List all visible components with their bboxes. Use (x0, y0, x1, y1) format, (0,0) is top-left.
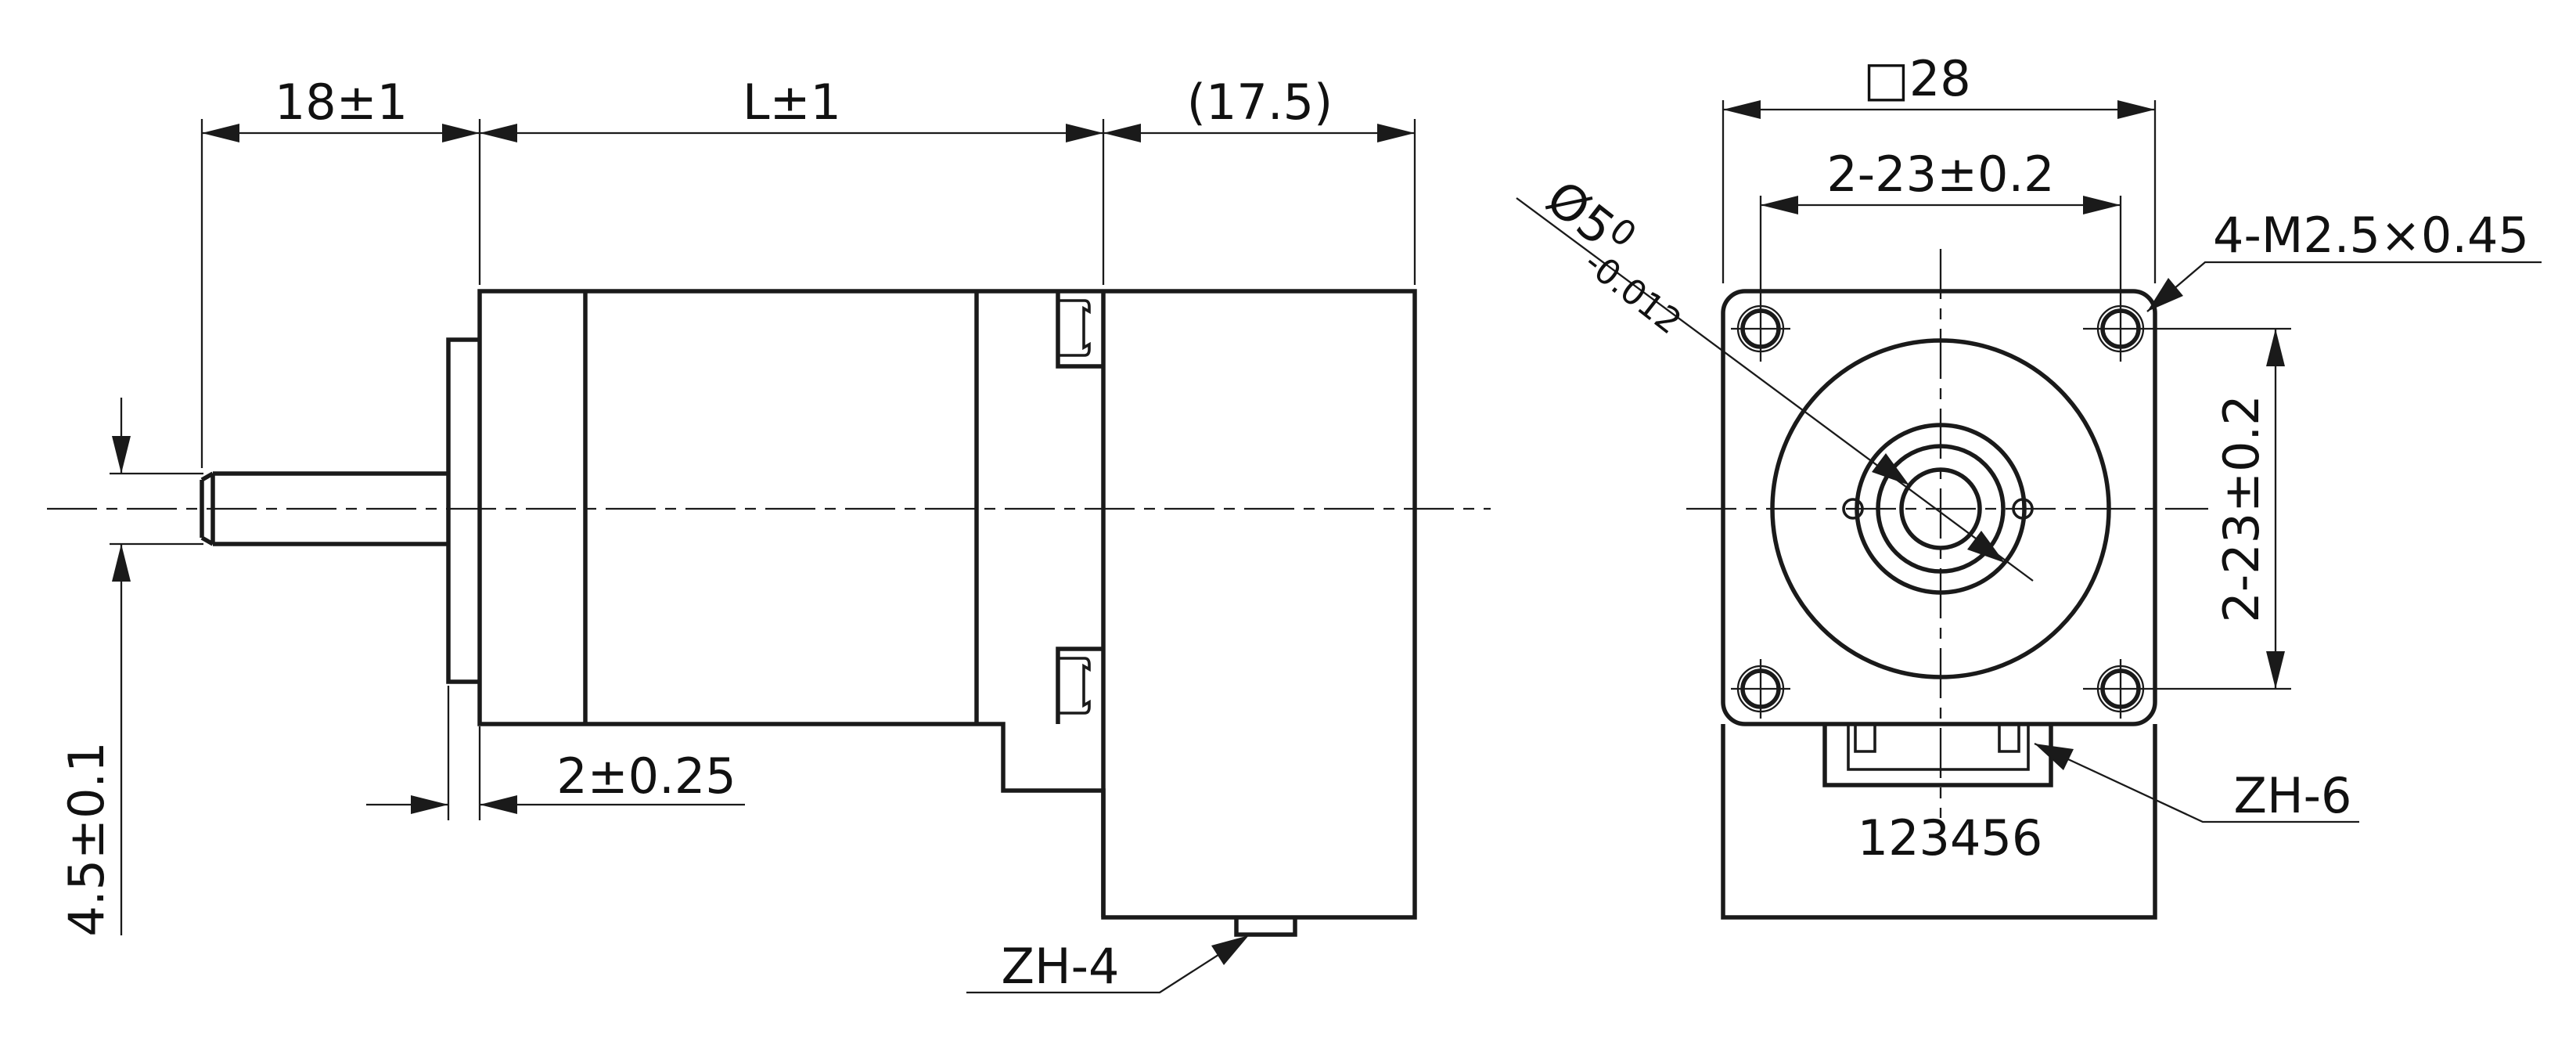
boss-thickness-dimension: 2±0.25 (366, 686, 745, 820)
zh4-callout: ZH-4 (966, 935, 1249, 995)
arrowhead (2266, 329, 2285, 366)
zh4-connector-label: ZH-4 (1002, 938, 1120, 995)
dim-boss-thickness-label: 2±0.25 (556, 748, 736, 805)
arrowhead (1723, 100, 1761, 119)
arrowhead (112, 436, 131, 474)
clip-top-detail (1060, 301, 1089, 355)
zh6-connector (1825, 724, 2051, 785)
zh6-connector-pins (1855, 724, 2019, 751)
arrowhead (2035, 744, 2074, 770)
arrowhead (480, 795, 517, 814)
dim-shaft-length-label: 18±1 (275, 74, 408, 131)
terminal-clip-bottom (1058, 649, 1103, 724)
zh6-callout: ZH-6 (2035, 744, 2359, 824)
dim-shaft-diameter-lower-tol: -0.012 (1577, 243, 1689, 343)
arrowhead (1761, 196, 1798, 214)
arrowhead (1066, 124, 1103, 142)
arrowhead (202, 124, 239, 142)
technical-drawing: 18±1 L±1 (17.5) 4.5±0.1 2±0.25 ZH-4 (0, 0, 2576, 1052)
mounting-thread-callout: 4-M2.5×0.45 (2147, 207, 2542, 312)
top-extension-lines (202, 119, 1415, 468)
dim-body-length-label: L±1 (743, 74, 841, 131)
dim-hole-spacing-vertical-label: 2-23±0.2 (2213, 394, 2270, 622)
pilot-boss-outline (448, 340, 480, 682)
shaft-flat-dimension: 4.5±0.1 (58, 398, 203, 937)
shaft-diameter-label-group: Ø5 0 -0.012 (1523, 168, 1714, 343)
dim-flange-size-label: □28 (1863, 50, 1970, 107)
zh4-connector-nub (1236, 917, 1295, 935)
arrowhead (1211, 935, 1249, 965)
arrowhead (2117, 100, 2155, 119)
dim-shaft-flat-label: 4.5±0.1 (58, 741, 115, 936)
mounting-thread-leader (2147, 262, 2542, 312)
zh6-connector-outer (1825, 724, 2051, 785)
arrowhead (442, 124, 480, 142)
arrowhead (2147, 278, 2183, 312)
terminal-clip-top (1058, 291, 1103, 366)
arrowhead (1103, 124, 1141, 142)
arrowhead (2083, 196, 2121, 214)
boss-extension-lines (448, 686, 480, 820)
arrowhead (480, 124, 517, 142)
side-view: 18±1 L±1 (17.5) 4.5±0.1 2±0.25 ZH-4 (47, 74, 1491, 995)
zh6-connector-label: ZH-6 (2234, 767, 2352, 824)
dim-hole-spacing-horizontal-label: 2-23±0.2 (1826, 146, 2054, 203)
front-view: □28 2-23±0.2 2-23±0.2 Ø5 0 -0.01 (1516, 50, 2542, 917)
arrowhead (411, 795, 448, 814)
connector-pin-numbers-label: 123456 (1858, 809, 2043, 866)
top-dimensions: 18±1 L±1 (17.5) (202, 74, 1415, 468)
arrowhead (2266, 651, 2285, 689)
arrowhead (1377, 124, 1415, 142)
dim-rear-length-label: (17.5) (1187, 74, 1333, 131)
hole-center-ticks (1731, 329, 2121, 719)
flange-outline (1723, 291, 2155, 724)
dim-mounting-thread-label: 4-M2.5×0.45 (2213, 207, 2529, 264)
clip-bottom-detail (1060, 658, 1089, 713)
mounting-holes (1731, 306, 2143, 719)
arrowhead (112, 544, 131, 582)
motor-body-outline (480, 291, 1415, 917)
